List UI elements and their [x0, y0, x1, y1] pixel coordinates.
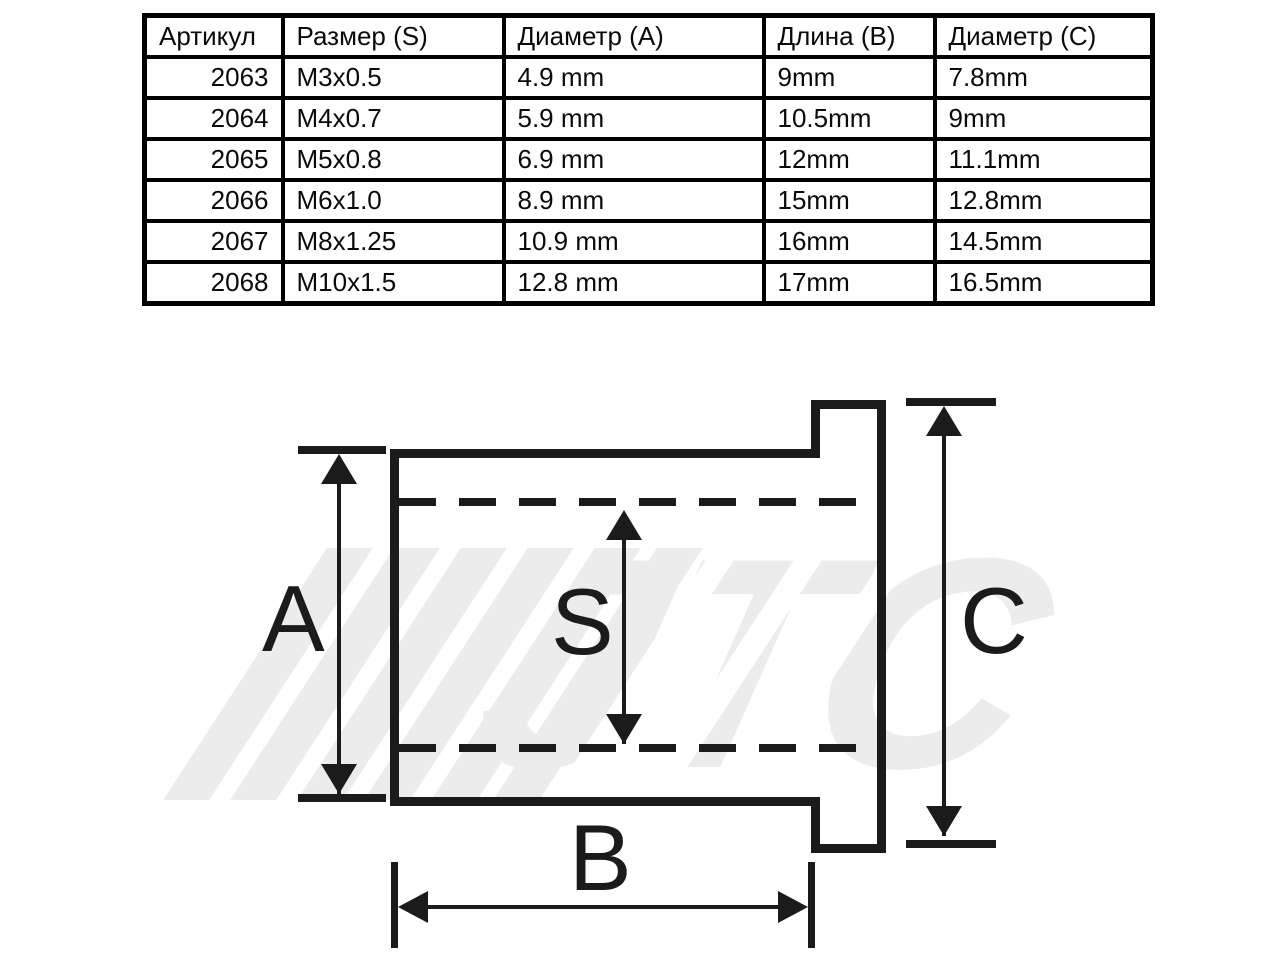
dim-c-tick-bottom: [906, 840, 996, 848]
dim-a-tick-bottom: [298, 794, 386, 802]
dim-s-arrowhead-down-icon: [606, 714, 642, 744]
dim-b-endbar-right: [808, 862, 815, 948]
dim-a-label: A: [262, 572, 325, 666]
dim-s-label: S: [551, 575, 614, 669]
column-header-size: Размер (S): [283, 16, 504, 58]
table-cell: 4.9 mm: [504, 57, 764, 98]
dim-s-arrowhead-up-icon: [606, 510, 642, 540]
dim-c-line: [942, 412, 946, 836]
table-cell: 7.8mm: [935, 57, 1153, 98]
table-row: 2063 M3x0.5 4.9 mm 9mm 7.8mm: [145, 57, 1153, 98]
column-header-length-b: Длина (B): [764, 16, 935, 58]
header-row: Артикул Размер (S) Диаметр (A) Длина (B)…: [145, 16, 1153, 58]
table-cell: 2067: [145, 221, 283, 262]
part-body-left-line: [390, 449, 399, 806]
table-cell: 2066: [145, 180, 283, 221]
part-body-top-line: [390, 449, 820, 458]
table-cell: M10x1.5: [283, 262, 504, 304]
dim-a-line: [337, 460, 341, 794]
table-cell: M5x0.8: [283, 139, 504, 180]
dim-s-line: [622, 516, 626, 744]
column-header-diameter-a: Диаметр (A): [504, 16, 764, 58]
dim-a-arrowhead-down-icon: [321, 764, 357, 794]
table-cell: 10.9 mm: [504, 221, 764, 262]
table-cell: 6.9 mm: [504, 139, 764, 180]
table-row: 2068 M10x1.5 12.8 mm 17mm 16.5mm: [145, 262, 1153, 304]
column-header-article: Артикул: [145, 16, 283, 58]
dim-b-label: B: [569, 811, 632, 905]
table-cell: M6x1.0: [283, 180, 504, 221]
table-row: 2065 M5x0.8 6.9 mm 12mm 11.1mm: [145, 139, 1153, 180]
table-cell: 9mm: [935, 98, 1153, 139]
dim-b-arrowhead-left-icon: [398, 891, 428, 923]
table-cell: M3x0.5: [283, 57, 504, 98]
table-cell: 12.8mm: [935, 180, 1153, 221]
table-row: 2067 M8x1.25 10.9 mm 16mm 14.5mm: [145, 221, 1153, 262]
part-flange-bottom-line: [811, 844, 886, 853]
part-flange-top-line: [811, 400, 886, 409]
table-cell: M8x1.25: [283, 221, 504, 262]
bore-dashed-line-bottom: [399, 744, 877, 752]
dim-a-tick-top: [298, 446, 386, 454]
table-row: 2064 M4x0.7 5.9 mm 10.5mm 9mm: [145, 98, 1153, 139]
table-cell: 16mm: [764, 221, 935, 262]
table-cell: 8.9 mm: [504, 180, 764, 221]
table-cell: 11.1mm: [935, 139, 1153, 180]
dim-b-arrowhead-right-icon: [778, 891, 808, 923]
spec-table: Артикул Размер (S) Диаметр (A) Длина (B)…: [142, 13, 1155, 306]
table-cell: 12mm: [764, 139, 935, 180]
dim-c-arrowhead-down-icon: [926, 806, 962, 836]
dim-c-arrowhead-up-icon: [926, 406, 962, 436]
part-step-bottom-line: [811, 797, 820, 853]
table-cell: 2065: [145, 139, 283, 180]
table-cell: 2064: [145, 98, 283, 139]
table-cell: M4x0.7: [283, 98, 504, 139]
bore-dashed-line-top: [399, 498, 877, 506]
page: { "colors": { "ink": "#1b1b1b", "table_b…: [0, 0, 1280, 960]
table-cell: 5.9 mm: [504, 98, 764, 139]
column-header-diameter-c: Диаметр (C): [935, 16, 1153, 58]
part-flange-right-line: [877, 400, 886, 853]
dim-b-endbar-left: [391, 862, 398, 948]
table-cell: 12.8 mm: [504, 262, 764, 304]
table-row: 2066 M6x1.0 8.9 mm 15mm 12.8mm: [145, 180, 1153, 221]
table-cell: 2063: [145, 57, 283, 98]
table-cell: 9mm: [764, 57, 935, 98]
dim-c-label: C: [960, 574, 1028, 668]
table-cell: 15mm: [764, 180, 935, 221]
dim-a-arrowhead-up-icon: [321, 454, 357, 484]
table-cell: 2068: [145, 262, 283, 304]
spec-table-container: Артикул Размер (S) Диаметр (A) Длина (B)…: [142, 13, 1155, 306]
dim-c-tick-top: [906, 398, 996, 406]
table-cell: 14.5mm: [935, 221, 1153, 262]
table-cell: 17mm: [764, 262, 935, 304]
table-cell: 16.5mm: [935, 262, 1153, 304]
table-cell: 10.5mm: [764, 98, 935, 139]
